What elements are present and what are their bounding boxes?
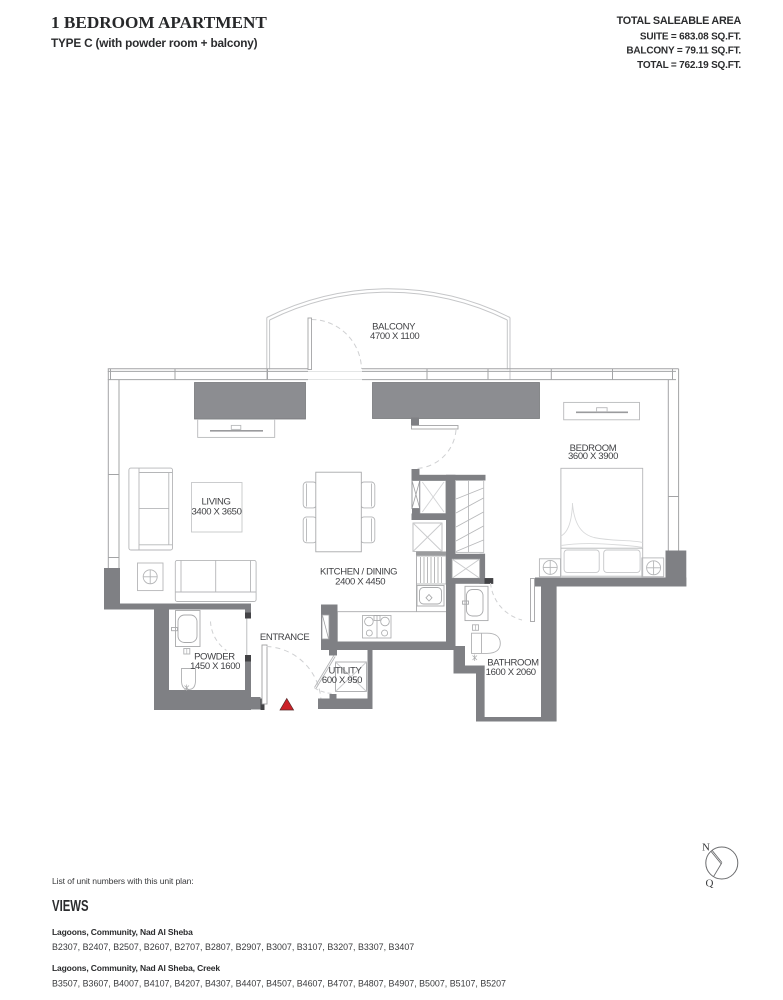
svg-text:1600 X 2060: 1600 X 2060 bbox=[486, 667, 536, 678]
svg-text:2400 X 4450: 2400 X 4450 bbox=[335, 577, 385, 588]
svg-text:3400 X 3650: 3400 X 3650 bbox=[191, 507, 241, 518]
svg-text:1450 X 1600: 1450 X 1600 bbox=[190, 661, 240, 672]
svg-text:4700 X 1100: 4700 X 1100 bbox=[370, 331, 419, 342]
svg-text:3600 X 3900: 3600 X 3900 bbox=[568, 451, 618, 462]
svg-text:N: N bbox=[702, 842, 710, 854]
svg-text:1 BEDROOM APARTMENT: 1 BEDROOM APARTMENT bbox=[51, 13, 267, 32]
svg-text:600 X 950: 600 X 950 bbox=[322, 675, 362, 686]
svg-text:VIEWS: VIEWS bbox=[52, 896, 89, 914]
svg-text:TYPE C (with powder room + bal: TYPE C (with powder room + balcony) bbox=[51, 36, 258, 50]
svg-text:BALCONY = 79.11 SQ.FT.: BALCONY = 79.11 SQ.FT. bbox=[626, 46, 741, 57]
svg-text:ENTRANCE: ENTRANCE bbox=[260, 632, 309, 643]
svg-text:Lagoons, Community, Nad Al She: Lagoons, Community, Nad Al Sheba bbox=[52, 927, 193, 937]
svg-text:B2307, B2407, B2507, B2607, B2: B2307, B2407, B2507, B2607, B2707, B2807… bbox=[52, 942, 414, 952]
svg-text:TOTAL = 762.19 SQ.FT.: TOTAL = 762.19 SQ.FT. bbox=[637, 60, 741, 71]
svg-text:List of unit numbers with this: List of unit numbers with this unit plan… bbox=[52, 876, 194, 886]
svg-text:SUITE = 683.08 SQ.FT.: SUITE = 683.08 SQ.FT. bbox=[640, 32, 742, 43]
svg-text:TOTAL SALEABLE AREA: TOTAL SALEABLE AREA bbox=[617, 15, 742, 27]
svg-text:B3507, B3607, B4007, B4107, B4: B3507, B3607, B4007, B4107, B4207, B4307… bbox=[52, 978, 506, 988]
svg-text:Q: Q bbox=[706, 878, 714, 890]
svg-text:Lagoons, Community, Nad Al She: Lagoons, Community, Nad Al Sheba, Creek bbox=[52, 963, 220, 973]
